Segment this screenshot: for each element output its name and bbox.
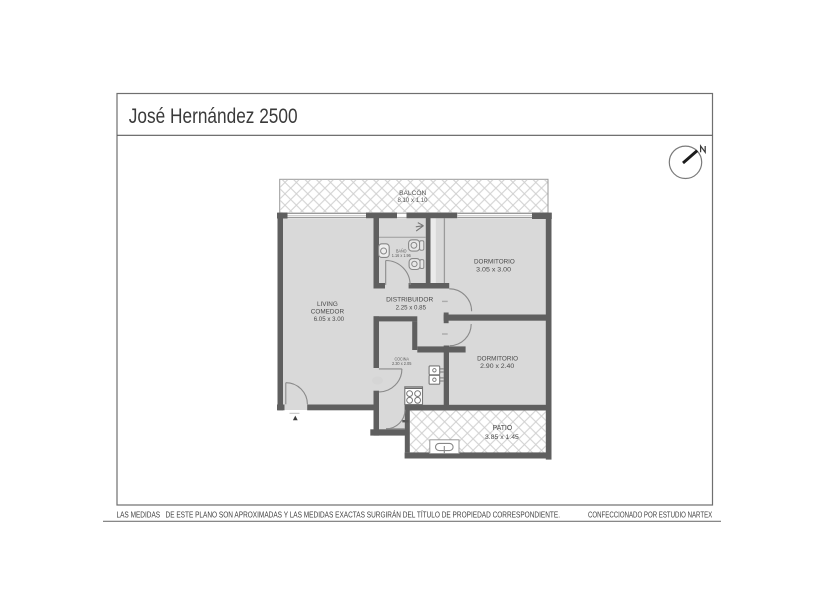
- svg-text:2.25 x 0.85: 2.25 x 0.85: [396, 305, 427, 312]
- svg-text:3.85 x 1.45: 3.85 x 1.45: [485, 434, 519, 441]
- svg-text:DORMITORIO: DORMITORIO: [477, 356, 518, 363]
- svg-text:8.10 x 1.10: 8.10 x 1.10: [398, 197, 429, 204]
- svg-text:BALCÓN: BALCÓN: [399, 188, 427, 197]
- svg-text:LIVING: LIVING: [317, 301, 338, 308]
- svg-text:DORMITORIO: DORMITORIO: [474, 259, 515, 266]
- svg-text:DISTRIBUIDOR: DISTRIBUIDOR: [386, 297, 433, 304]
- svg-text:2.90 x 2.40: 2.90 x 2.40: [480, 363, 514, 370]
- svg-text:José Hernández 2500: José Hernández 2500: [129, 105, 298, 128]
- svg-text:1.16 x 1.96: 1.16 x 1.96: [392, 253, 412, 258]
- svg-text:CONFECCIONADO POR ESTUDIO NART: CONFECCIONADO POR ESTUDIO NARTEX: [588, 511, 713, 520]
- svg-text:2.30 x 2.05: 2.30 x 2.05: [392, 361, 412, 366]
- svg-text:6.05 x 3.00: 6.05 x 3.00: [314, 316, 345, 323]
- svg-text:LAS MEDIDAS DE ESTE PLANO SO: LAS MEDIDAS DE ESTE PLANO SON APROXIMADA…: [117, 511, 561, 520]
- svg-text:COMEDOR: COMEDOR: [311, 309, 344, 316]
- svg-text:3.05 x 3.00: 3.05 x 3.00: [476, 266, 511, 273]
- svg-text:PATIO: PATIO: [493, 425, 513, 432]
